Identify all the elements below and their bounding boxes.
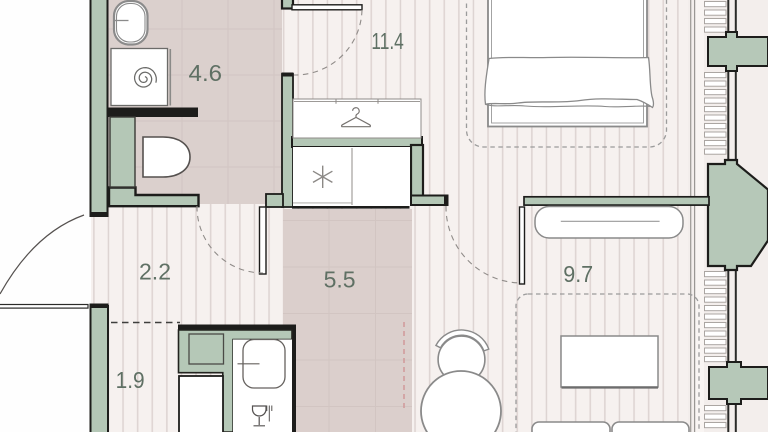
svg-text:9.7: 9.7	[563, 261, 593, 287]
svg-text:11.4: 11.4	[371, 28, 404, 54]
svg-text:5.5: 5.5	[324, 267, 356, 293]
svg-text:4.6: 4.6	[189, 60, 223, 86]
svg-text:2.2: 2.2	[139, 259, 171, 285]
svg-text:1.9: 1.9	[116, 367, 145, 393]
